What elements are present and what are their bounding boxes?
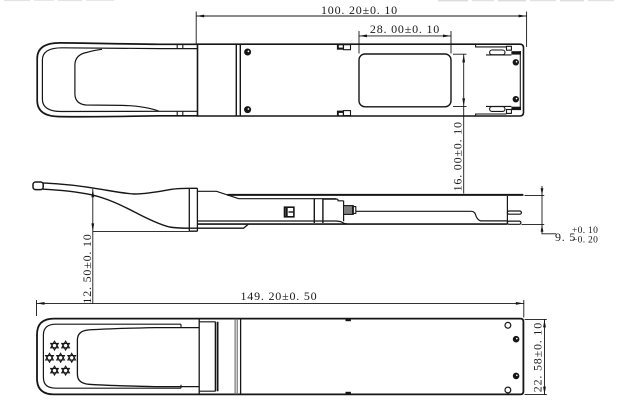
svg-text:100. 20±0. 10: 100. 20±0. 10 (321, 3, 398, 17)
svg-text:22. 58±0. 10: 22. 58±0. 10 (531, 322, 545, 392)
svg-text:16. 00±0. 10: 16. 00±0. 10 (450, 121, 464, 191)
svg-text:12. 50±0. 10: 12. 50±0. 10 (80, 233, 94, 303)
svg-text:−0. 20: −0. 20 (572, 235, 598, 245)
svg-text:149. 20±0. 50: 149. 20±0. 50 (241, 289, 318, 303)
svg-text:28. 00±0. 10: 28. 00±0. 10 (370, 22, 440, 36)
